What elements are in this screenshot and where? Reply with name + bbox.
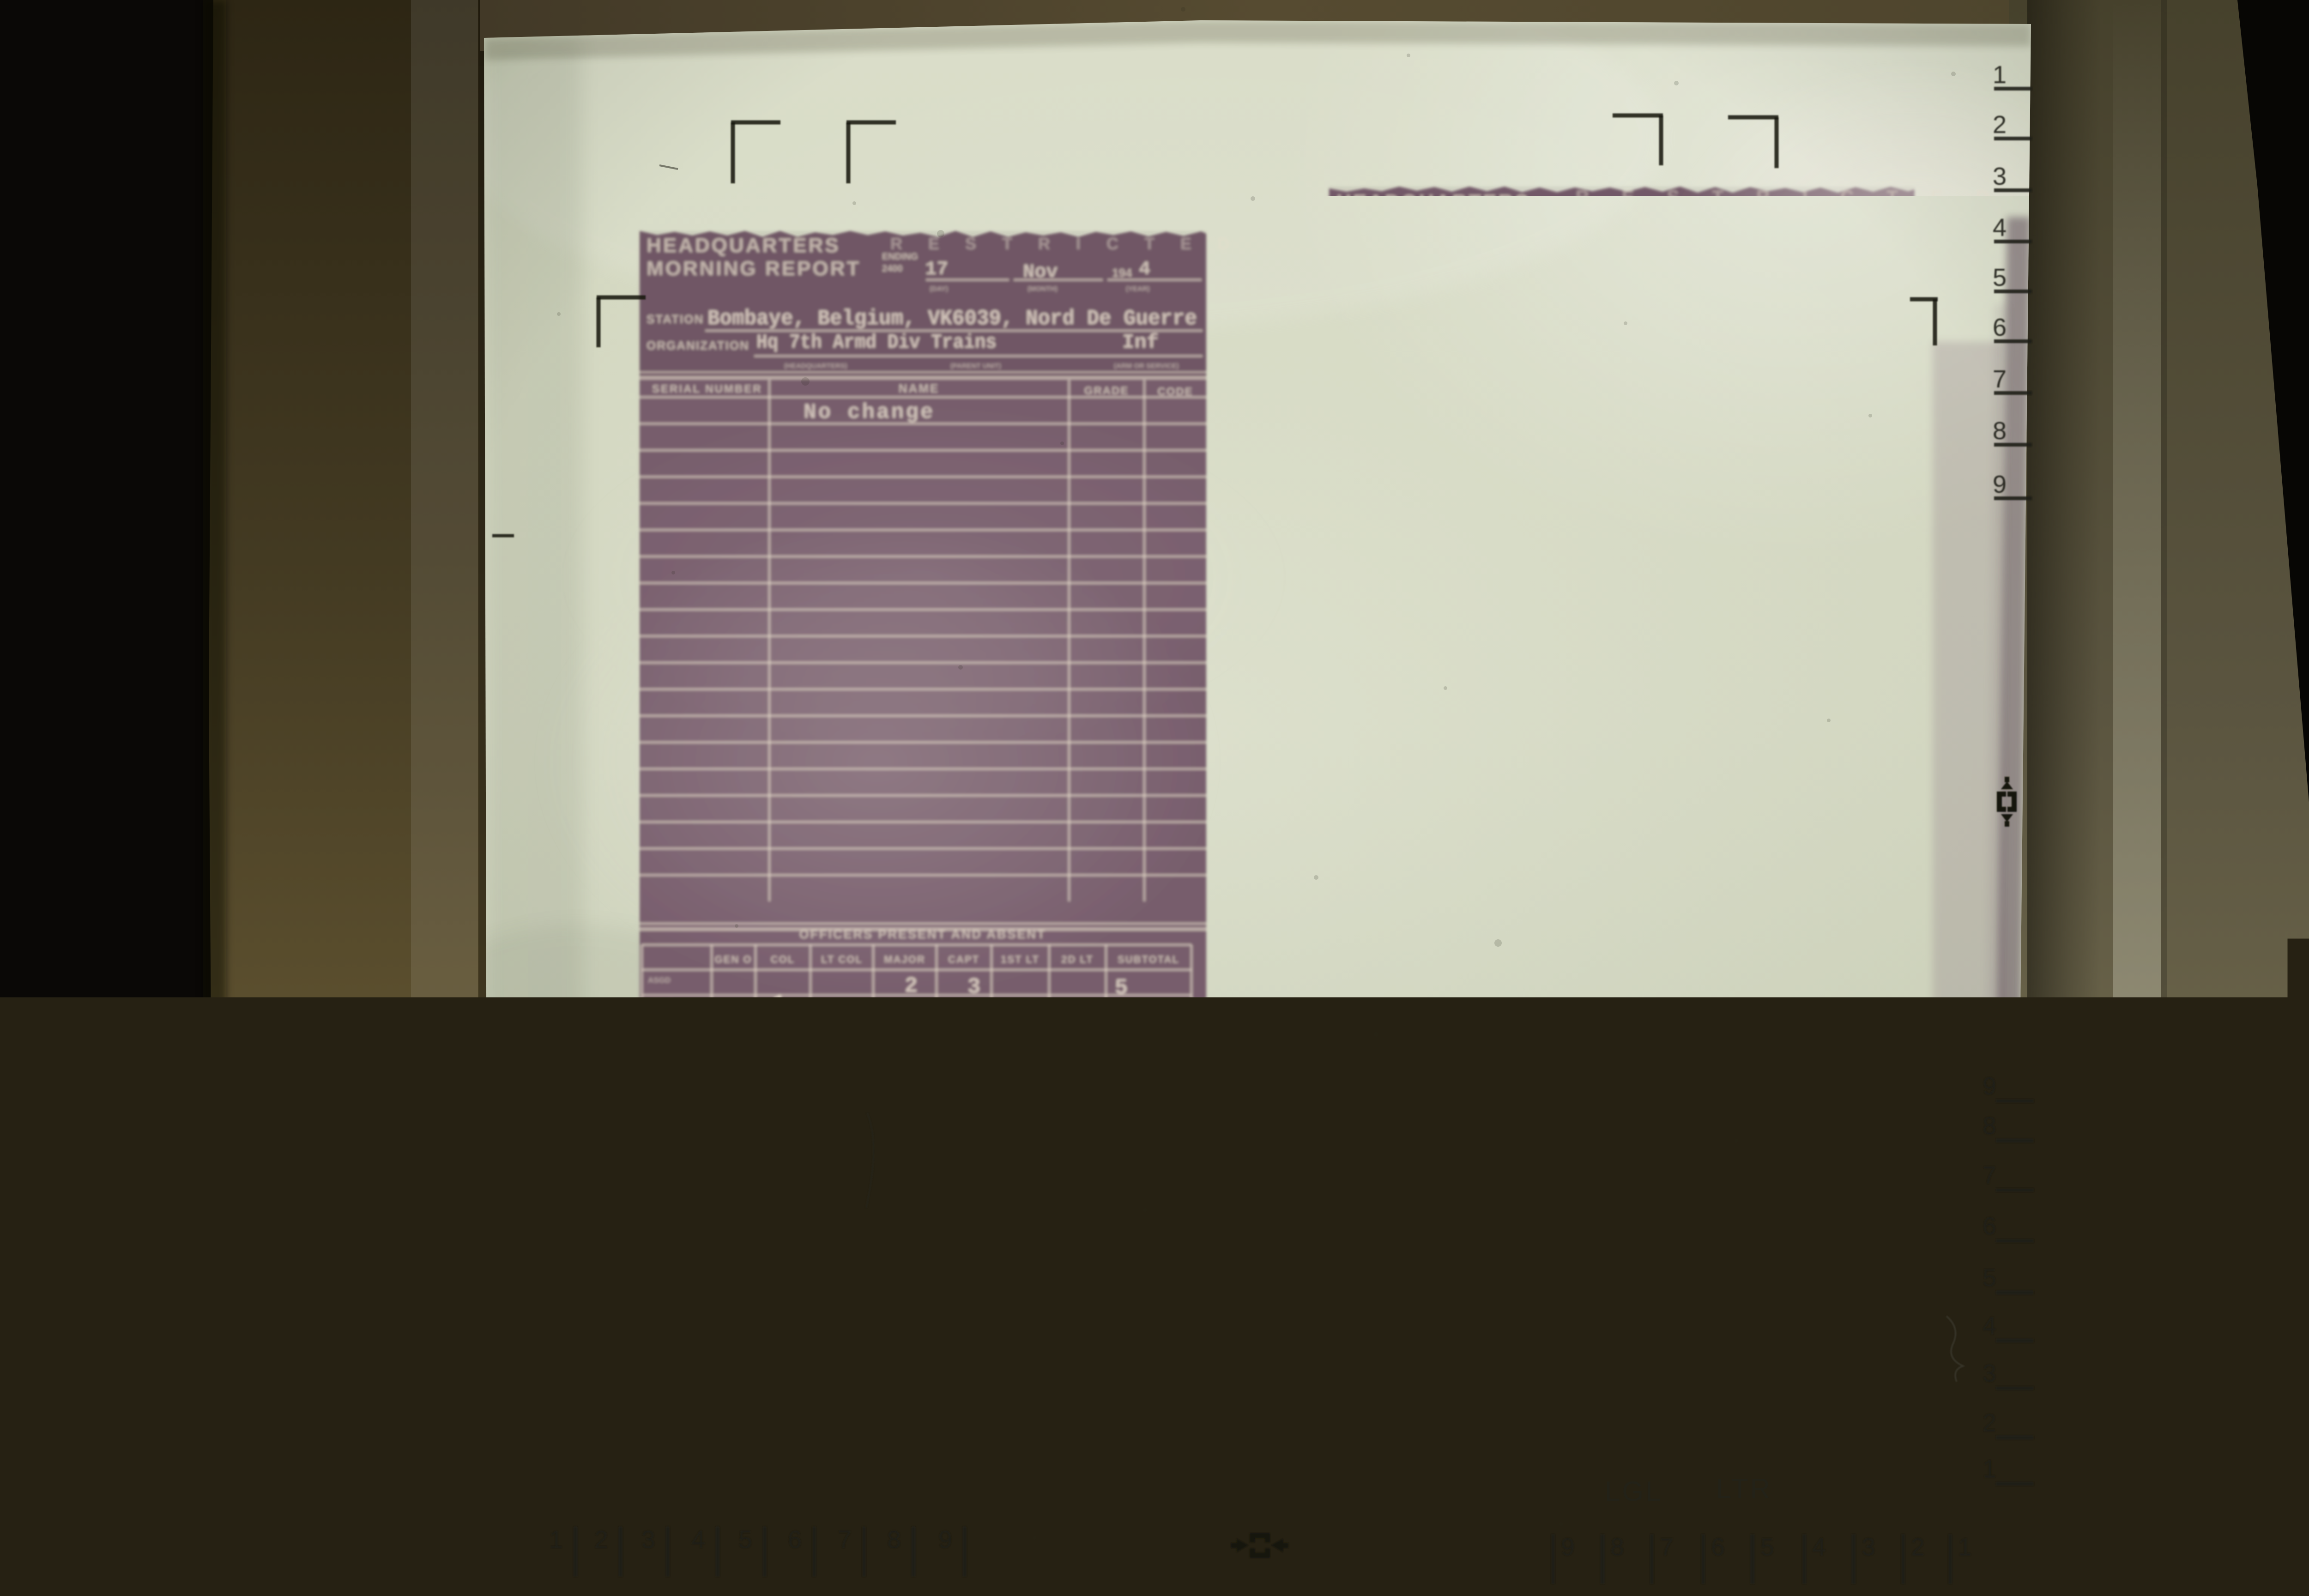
svg-text:PRES &: PRES & — [853, 1243, 879, 1251]
svg-text:4: 4 — [1139, 258, 1150, 280]
svg-text:ENLISTED PERSONNEL: ENLISTED PERSONNEL — [1427, 1191, 1575, 1204]
svg-text:3: 3 — [1662, 938, 1676, 963]
svg-text:W.D., A.G.O. FORM NO. 1: W.D., A.G.O. FORM NO. 1 — [653, 1461, 742, 1469]
svg-text:ANC: ANC — [861, 1096, 885, 1108]
svg-text:5: 5 — [1686, 1221, 1700, 1245]
svg-text:(HEADQUARTERS): (HEADQUARTERS) — [1476, 302, 1539, 310]
svg-text:8: 8 — [1557, 1218, 1571, 1243]
svg-text:FLT O: FLT O — [1461, 1059, 1492, 1071]
svg-text:6: 6 — [1838, 1013, 1851, 1038]
svg-text:AVN CADETS: AVN CADETS — [890, 1230, 970, 1242]
svg-text:8: 8 — [1557, 1287, 1571, 1312]
svg-text:H D: H D — [958, 1096, 977, 1108]
svg-text:5: 5 — [1116, 1260, 1129, 1285]
svg-text:1: 1 — [1570, 1323, 1582, 1346]
svg-text:6: 6 — [1115, 1049, 1128, 1074]
svg-text:ATCHD FR: ATCHD FR — [648, 1023, 688, 1032]
svg-text:6: 6 — [1116, 1331, 1129, 1356]
svg-text:5: 5 — [1760, 1533, 1774, 1561]
svg-text:SUBTOTAL: SUBTOTAL — [1818, 1059, 1876, 1071]
svg-text:ASGD: ASGD — [648, 976, 671, 985]
svg-text:1: 1 — [1116, 1283, 1129, 1308]
svg-text:ASGD: ASGD — [648, 1117, 671, 1126]
svg-text:4: 4 — [1847, 214, 1859, 236]
svg-text:2: 2 — [1993, 111, 2007, 139]
svg-text:WD COPY THRU MRU OR SCU: WD COPY THRU MRU OR SCU — [816, 1469, 1011, 1482]
svg-text:ABS'T: ABS'T — [1517, 1206, 1537, 1214]
svg-text:STRENGTH: STRENGTH — [1341, 1194, 1404, 1206]
svg-text:1ST LT: 1ST LT — [1711, 913, 1749, 925]
svg-text:SUBTOTAL: SUBTOTAL — [1114, 1096, 1172, 1108]
svg-text:OF: OF — [1611, 1327, 1635, 1345]
svg-text:OTHER ORGN: OTHER ORGN — [648, 1318, 701, 1327]
svg-text:ENDING: ENDING — [882, 252, 918, 262]
svg-text:2: 2 — [905, 1048, 918, 1073]
svg-text:3: 3 — [1862, 1533, 1875, 1561]
svg-text:2400: 2400 — [1569, 220, 1590, 230]
svg-text:8: 8 — [1610, 1533, 1624, 1561]
svg-text:CAPT: CAPT — [948, 954, 979, 965]
svg-text:PRES: PRES — [727, 1243, 746, 1251]
svg-text:ATCHD: ATCHD — [1337, 1105, 1364, 1114]
svg-text:ASGD: ASGD — [1337, 1228, 1360, 1237]
svg-text:1: 1 — [1993, 61, 2007, 89]
svg-text:3: 3 — [967, 975, 981, 1000]
svg-text:STATION: STATION — [1336, 251, 1394, 265]
svg-text:STATION: STATION — [647, 312, 704, 326]
svg-text:ASGD: ASGD — [1337, 937, 1360, 946]
svg-text:8: 8 — [731, 1328, 745, 1353]
svg-text:(NAME): (NAME) — [802, 1461, 828, 1469]
svg-text:HEADQUARTERS: HEADQUARTERS — [1336, 191, 1530, 213]
svg-text:LT COL: LT COL — [821, 954, 863, 965]
svg-text:FLT O: FLT O — [760, 1096, 791, 1108]
svg-text:1: 1 — [549, 1526, 563, 1554]
svg-text:SERIAL NUMBER: SERIAL NUMBER — [652, 383, 762, 395]
svg-text:CODE: CODE — [1858, 367, 1894, 380]
svg-text:H D: H D — [1660, 1059, 1679, 1071]
svg-text:I CERTIFY THAT THIS MORNING: I CERTIFY THAT THIS MORNING — [1471, 1354, 1743, 1371]
svg-text:4: 4 — [1993, 214, 2007, 242]
svg-text:1: 1 — [1958, 1533, 1972, 1561]
svg-text:6: 6 — [1993, 314, 2007, 341]
svg-text:WD COPY THRU MRU OR SCU: WD COPY THRU MRU OR SCU — [1504, 1436, 1699, 1450]
svg-text:C SURG: C SURG — [1505, 1059, 1547, 1071]
svg-text:PRES NOT: PRES NOT — [1733, 1206, 1768, 1214]
svg-text:9: 9 — [1561, 1533, 1575, 1561]
svg-text:ABS'T: ABS'T — [1076, 1243, 1096, 1251]
svg-text:AVN CADETS: AVN CADETS — [1597, 1193, 1677, 1205]
svg-text:2D LT: 2D LT — [1773, 913, 1805, 925]
svg-text:EDWARD H ROGERS CWO USA Pers O: EDWARD H ROGERS CWO USA Pers O — [1416, 1406, 1711, 1428]
svg-text:ASGD: ASGD — [648, 1270, 671, 1278]
svg-text:MORNING REPORT: MORNING REPORT — [647, 257, 861, 280]
svg-text:1: 1 — [883, 1361, 895, 1384]
svg-text:ABS'T: ABS'T — [1785, 1206, 1805, 1214]
svg-text:PAGE: PAGE — [1486, 1327, 1535, 1345]
svg-text:5: 5 — [1983, 1264, 1996, 1292]
svg-text:OTHER ORGN: OTHER ORGN — [648, 1173, 701, 1181]
svg-text:3: 3 — [969, 1050, 982, 1075]
svg-text:5: 5 — [738, 1526, 752, 1554]
svg-text:1: 1 — [773, 991, 786, 1016]
svg-text:3: 3 — [1660, 1019, 1673, 1044]
svg-text:UNASGD: UNASGD — [1337, 970, 1372, 979]
svg-text:1: 1 — [1467, 1012, 1481, 1037]
svg-text:1: 1 — [1842, 957, 1855, 982]
svg-text:(PARENT UNIT): (PARENT UNIT) — [1642, 302, 1693, 310]
svg-text:Bombaye, Belgium, VK6039, Nord: Bombaye, Belgium, VK6039, Nord De Guerre — [1401, 245, 1905, 269]
svg-text:TOTAL: TOTAL — [666, 1214, 695, 1223]
svg-text:(GRADE) (ARM OR SERVICE): (GRADE) (ARM OR SERVICE) — [1721, 1431, 1824, 1439]
svg-text:PRESENT: PRESENT — [1133, 1243, 1166, 1251]
svg-text:ATCHD: ATCHD — [648, 997, 675, 1006]
svg-text:8: 8 — [1423, 1219, 1437, 1244]
svg-text:PTA: PTA — [1704, 1059, 1724, 1071]
svg-text:7: 7 — [1993, 365, 2007, 393]
svg-text:PRESENT: PRESENT — [1838, 1206, 1871, 1214]
svg-text:PRES NOT: PRES NOT — [1024, 1243, 1060, 1251]
svg-text:SUBTOTAL: SUBTOTAL — [1118, 954, 1179, 965]
svg-text:GEN O: GEN O — [1418, 913, 1455, 925]
svg-text:(ARM OR SERVICE): (ARM OR SERVICE) — [1114, 362, 1179, 370]
svg-text:GRADE: GRADE — [1781, 366, 1825, 379]
svg-text:ATCHD FR: ATCHD FR — [1337, 988, 1377, 997]
svg-text:8: 8 — [887, 1526, 901, 1554]
svg-text:& ABSENT: & ABSENT — [1132, 1253, 1167, 1261]
svg-text:18: 18 — [1625, 214, 1648, 236]
svg-text:R E S T R I C T E D: R E S T R I C T E D — [890, 234, 1240, 253]
svg-text:TOTAL: TOTAL — [1356, 1172, 1384, 1182]
svg-text:8: 8 — [1423, 1288, 1437, 1313]
svg-text:REPORT IS CORRECT:: REPORT IS CORRECT: — [1512, 1371, 1702, 1388]
svg-text:ASGD: ASGD — [1337, 1082, 1360, 1091]
svg-text:5: 5 — [990, 1259, 1003, 1284]
svg-text:6: 6 — [990, 1330, 1003, 1354]
svg-text:ATCHD: ATCHD — [1337, 961, 1364, 969]
svg-text:WO: WO — [723, 1096, 741, 1108]
svg-text:WAAC: WAAC — [903, 1096, 936, 1108]
svg-text:JULY 1, 1943: JULY 1, 1943 — [1357, 1440, 1402, 1448]
svg-text:CAPT: CAPT — [1654, 913, 1685, 925]
svg-text:2: 2 — [905, 974, 918, 999]
svg-text:(DAY): (DAY) — [930, 285, 948, 293]
svg-text:3: 3 — [1983, 1360, 1996, 1387]
svg-text:ABS'T: ABS'T — [1651, 1206, 1671, 1214]
svg-text:9: 9 — [1993, 471, 2007, 498]
svg-text:ATCHD FR: ATCHD FR — [648, 1310, 688, 1319]
svg-text:ATCHD FR: ATCHD FR — [1337, 1271, 1377, 1280]
svg-text:NAME: NAME — [899, 381, 940, 395]
svg-text:1: 1 — [1983, 1455, 1996, 1483]
svg-text:17: 17 — [925, 258, 948, 280]
svg-text:OFFICERS PRESENT AND ABSENT: OFFICERS PRESENT AND ABSENT — [799, 927, 1046, 941]
svg-text:FOR DY: FOR DY — [766, 1253, 792, 1261]
svg-text:COL: COL — [771, 954, 795, 965]
svg-text:6: 6 — [788, 1526, 802, 1554]
svg-text:UNASGD: UNASGD — [648, 1007, 682, 1016]
svg-text:OFFICER PERSONNEL: OFFICER PERSONNEL — [1012, 1230, 1154, 1243]
svg-text:2: 2 — [1983, 1409, 1996, 1437]
svg-text:ENDING: ENDING — [1569, 208, 1605, 218]
svg-text:ATCHD FR: ATCHD FR — [1337, 1132, 1377, 1141]
svg-text:ABS'T: ABS'T — [814, 1243, 834, 1251]
svg-text:TOTAL: TOTAL — [1356, 1024, 1384, 1034]
svg-text:2400: 2400 — [882, 264, 903, 274]
svg-text:OTHER ORGN: OTHER ORGN — [648, 1032, 701, 1041]
svg-text:OF: OF — [924, 1366, 948, 1384]
svg-text:LTR: LTR — [1716, 1473, 1772, 1504]
svg-text:194: 194 — [1112, 266, 1132, 280]
svg-text:PRES: PRES — [1606, 1206, 1625, 1214]
svg-text:SUBTOTAL: SUBTOTAL — [1824, 913, 1886, 925]
svg-text:ABS'T: ABS'T — [943, 1243, 964, 1251]
svg-text:Inf: Inf — [1851, 271, 1887, 294]
svg-text:UNASGD: UNASGD — [1337, 1256, 1372, 1264]
svg-text:JULY 1, 1943: JULY 1, 1943 — [667, 1473, 712, 1481]
svg-text:PRES: PRES — [988, 1243, 1007, 1251]
svg-text:No change: No change — [804, 400, 935, 424]
svg-text:1ST LT: 1ST LT — [1001, 954, 1040, 965]
svg-text:1: 1 — [1671, 1323, 1683, 1346]
svg-text:I CERTIFY THAT THIS MORNING: I CERTIFY THAT THIS MORNING — [781, 1394, 1052, 1411]
svg-text:7: 7 — [1983, 1161, 1996, 1189]
svg-text:W.D., A.G.O. FORM NO. 1: W.D., A.G.O. FORM NO. 1 — [1343, 1428, 1431, 1436]
svg-text:2: 2 — [1600, 1017, 1613, 1042]
svg-text:6: 6 — [1685, 1289, 1699, 1314]
svg-text:OFFICERS PRESENT AND ABSENT—CO: OFFICERS PRESENT AND ABSENT—CONTINUED — [1468, 1042, 1776, 1055]
svg-text:C SURG: C SURG — [803, 1096, 846, 1108]
svg-text:6: 6 — [1836, 1290, 1850, 1315]
svg-text:PAGES: PAGES — [1026, 1366, 1087, 1384]
svg-text:UNASGD: UNASGD — [1337, 1114, 1372, 1123]
svg-text:2: 2 — [1598, 937, 1612, 962]
svg-text:PRES: PRES — [899, 1243, 918, 1251]
svg-text:OTHER ORGN: OTHER ORGN — [1337, 997, 1390, 1006]
svg-text:3: 3 — [1993, 163, 2007, 190]
svg-text:PAGES: PAGES — [1713, 1327, 1774, 1345]
svg-text:1: 1 — [1466, 962, 1479, 987]
svg-text:4: 4 — [1812, 1533, 1826, 1561]
svg-text:6: 6 — [1983, 1212, 1996, 1240]
svg-text:NAME: NAME — [1591, 363, 1632, 377]
svg-text:4: 4 — [1983, 1312, 1996, 1340]
svg-text:OTHER ORGN: OTHER ORGN — [1337, 1141, 1390, 1150]
svg-text:TOTAL: TOTAL — [666, 1338, 695, 1348]
svg-text:ANC: ANC — [1563, 1059, 1587, 1071]
svg-text:9: 9 — [938, 1526, 952, 1554]
svg-text:ATCHD: ATCHD — [1337, 1246, 1364, 1255]
svg-text:(GRADE) (ARM OR SERVICE): (GRADE) (ARM OR SERVICE) — [1012, 1463, 1115, 1471]
svg-text:MAJOR: MAJOR — [884, 954, 925, 965]
svg-text:(PARENT UNIT): (PARENT UNIT) — [950, 362, 1001, 370]
svg-text:PAGE: PAGE — [799, 1366, 848, 1384]
svg-text:5: 5 — [1838, 1219, 1851, 1244]
svg-text:MORNING REPORT: MORNING REPORT — [1336, 213, 1551, 236]
svg-text:LGL: LGL — [1605, 1476, 1662, 1507]
svg-text:5: 5 — [1993, 264, 2007, 291]
svg-text:LT COL: LT COL — [1529, 913, 1570, 925]
svg-text:(ARM OR SERVICE): (ARM OR SERVICE) — [1822, 302, 1887, 310]
svg-text:6: 6 — [1711, 1533, 1725, 1561]
svg-text:ATCHD: ATCHD — [648, 1285, 675, 1294]
svg-text:7: 7 — [1660, 1533, 1674, 1561]
svg-text:UNASGD: UNASGD — [648, 1148, 682, 1156]
svg-text:2D LT: 2D LT — [1061, 954, 1093, 965]
svg-text:(NAME): (NAME) — [1490, 1428, 1517, 1436]
svg-text:MAJOR: MAJOR — [1590, 913, 1632, 925]
svg-text:(MONTH): (MONTH) — [1028, 285, 1058, 293]
svg-text:8: 8 — [1983, 1112, 1996, 1140]
svg-text:HEADQUARTERS: HEADQUARTERS — [647, 234, 840, 257]
svg-text:1: 1 — [984, 1361, 996, 1384]
svg-text:ORGANIZATION: ORGANIZATION — [647, 339, 750, 352]
svg-text:(YEAR): (YEAR) — [1126, 285, 1150, 293]
svg-text:1: 1 — [774, 1047, 787, 1072]
svg-text:9: 9 — [1983, 1072, 1996, 1100]
svg-text:STRENGTH: STRENGTH — [651, 1231, 714, 1243]
svg-text:(HEADQUARTERS): (HEADQUARTERS) — [784, 362, 847, 370]
svg-text:TOTAL: TOTAL — [1356, 1298, 1384, 1307]
svg-text:TOTAL: TOTAL — [666, 1055, 695, 1064]
svg-text:WAAC: WAAC — [1605, 1059, 1638, 1071]
svg-text:PRES NOT: PRES NOT — [1465, 1206, 1500, 1214]
svg-text:1: 1 — [1116, 997, 1129, 1022]
svg-text:WO: WO — [1425, 1059, 1443, 1071]
svg-text:Hq 7th Armd Div Trains: Hq 7th Armd Div Trains — [1448, 271, 1688, 294]
svg-text:SERIAL NUMBER: SERIAL NUMBER — [1342, 364, 1452, 377]
svg-text:FOR DY: FOR DY — [1029, 1253, 1055, 1261]
svg-text:1: 1 — [990, 1282, 1003, 1307]
svg-text:1: 1 — [1836, 1243, 1850, 1268]
svg-text:PTA: PTA — [1000, 1096, 1021, 1108]
svg-text:PRES: PRES — [1426, 1206, 1445, 1214]
svg-text:GRADE: GRADE — [1084, 385, 1129, 397]
svg-text:COL: COL — [1477, 913, 1501, 925]
svg-text:1: 1 — [1684, 1245, 1697, 1270]
svg-text:Bombaye, Belgium, VK6039, Nord: Bombaye, Belgium, VK6039, Nord De Guerre — [707, 307, 1197, 331]
svg-text:ATCHD FR: ATCHD FR — [648, 1163, 688, 1172]
svg-text:194: 194 — [1820, 222, 1841, 236]
svg-text:8: 8 — [858, 1257, 871, 1282]
svg-text:PRES: PRES — [1696, 1206, 1715, 1214]
svg-text:2: 2 — [1911, 1533, 1925, 1561]
svg-text:UNASGD: UNASGD — [648, 1294, 682, 1303]
svg-text:4: 4 — [691, 1526, 705, 1554]
svg-text:8: 8 — [731, 1257, 745, 1282]
svg-text:2: 2 — [594, 1526, 608, 1554]
svg-text:8: 8 — [1993, 417, 2007, 445]
svg-text:R E S T R I C T E D: R E S T R I C T E D — [1576, 187, 2003, 207]
svg-text:PRES &: PRES & — [1557, 1206, 1583, 1214]
svg-text:ATCHD: ATCHD — [648, 1138, 675, 1147]
svg-text:Hq 7th Armd Div Trains: Hq 7th Armd Div Trains — [756, 331, 997, 354]
svg-text:EDWARD H ROGERS CWO USA Pers O: EDWARD H ROGERS CWO USA Pers O — [728, 1439, 1079, 1461]
svg-text:OFFICERS PRESENT AND ABSENT: OFFICERS PRESENT AND ABSENT — [1498, 888, 1745, 901]
svg-text:OFFICER PERSONNEL: OFFICER PERSONNEL — [1717, 1193, 1858, 1206]
svg-text:8: 8 — [858, 1329, 871, 1354]
svg-text:OTHER ORGN: OTHER ORGN — [1337, 1280, 1390, 1288]
svg-text:7: 7 — [838, 1526, 852, 1554]
svg-text:Rol: Rol — [170, 1566, 213, 1596]
svg-text:OFFICERS PRESENT AND ABSENT—CO: OFFICERS PRESENT AND ABSENT—CONTINUED — [768, 1075, 1077, 1088]
svg-text:PRES NOT: PRES NOT — [762, 1243, 797, 1251]
svg-text:Inf: Inf — [1122, 331, 1159, 354]
svg-text:ORGANIZATION: ORGANIZATION — [1336, 278, 1439, 292]
svg-text:GEN O: GEN O — [715, 954, 752, 965]
svg-text:3: 3 — [641, 1526, 655, 1554]
